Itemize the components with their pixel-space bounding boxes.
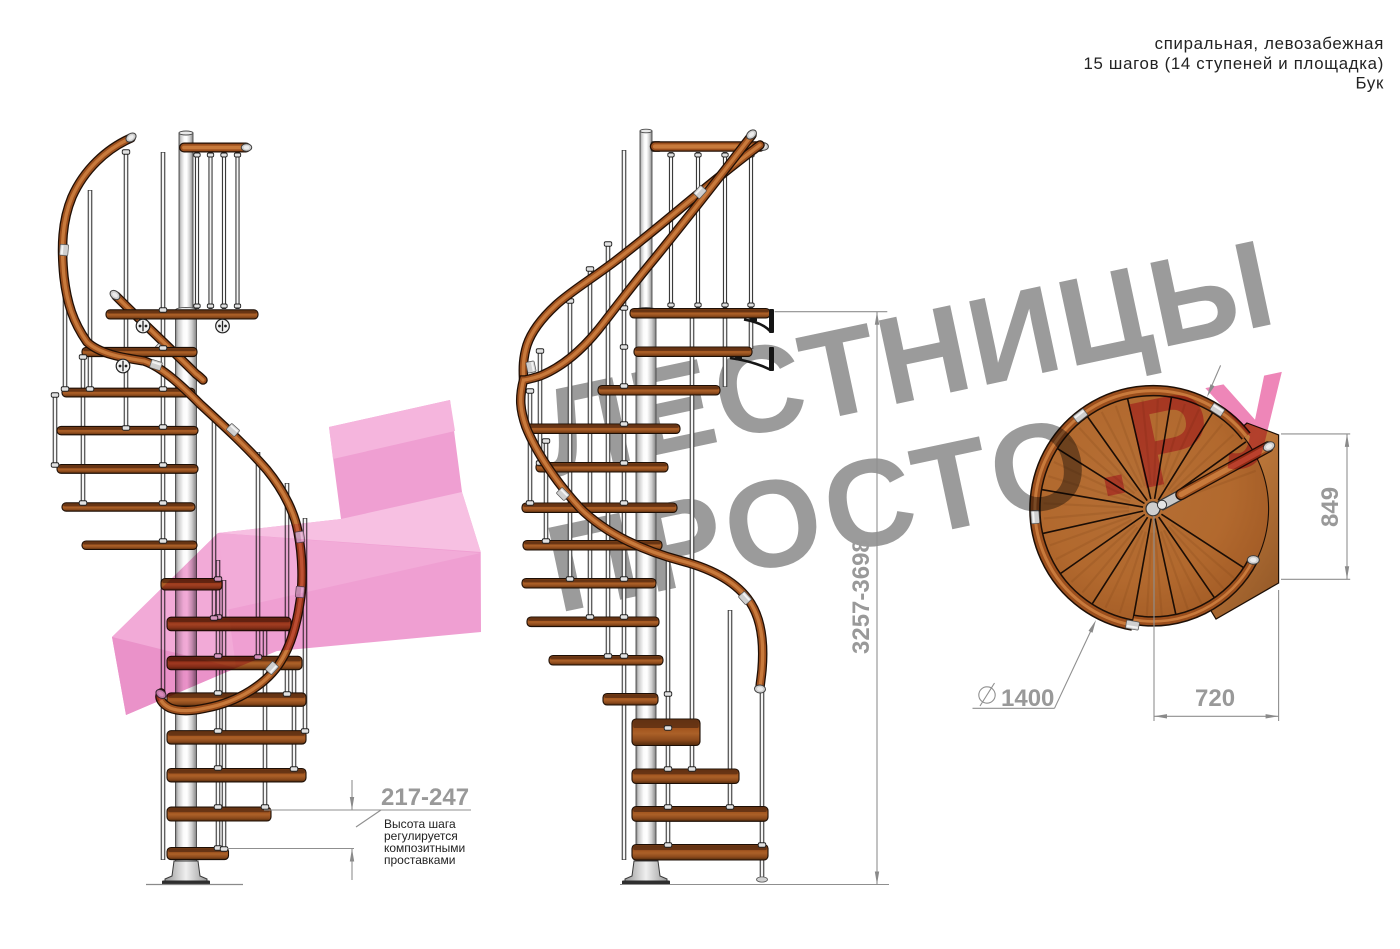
svg-text:849: 849 xyxy=(1317,487,1344,527)
svg-text:15 шагов (14 ступеней и площад: 15 шагов (14 ступеней и площадка) xyxy=(1083,54,1384,73)
svg-text:проставками: проставками xyxy=(384,853,455,867)
svg-text:217-247: 217-247 xyxy=(381,784,469,811)
svg-text:спиральная, левозабежная: спиральная, левозабежная xyxy=(1155,34,1384,53)
svg-text:3257-3698: 3257-3698 xyxy=(848,539,875,654)
svg-text:720: 720 xyxy=(1195,685,1235,712)
svg-text:Бук: Бук xyxy=(1356,74,1384,93)
svg-text:1400: 1400 xyxy=(1001,685,1054,712)
